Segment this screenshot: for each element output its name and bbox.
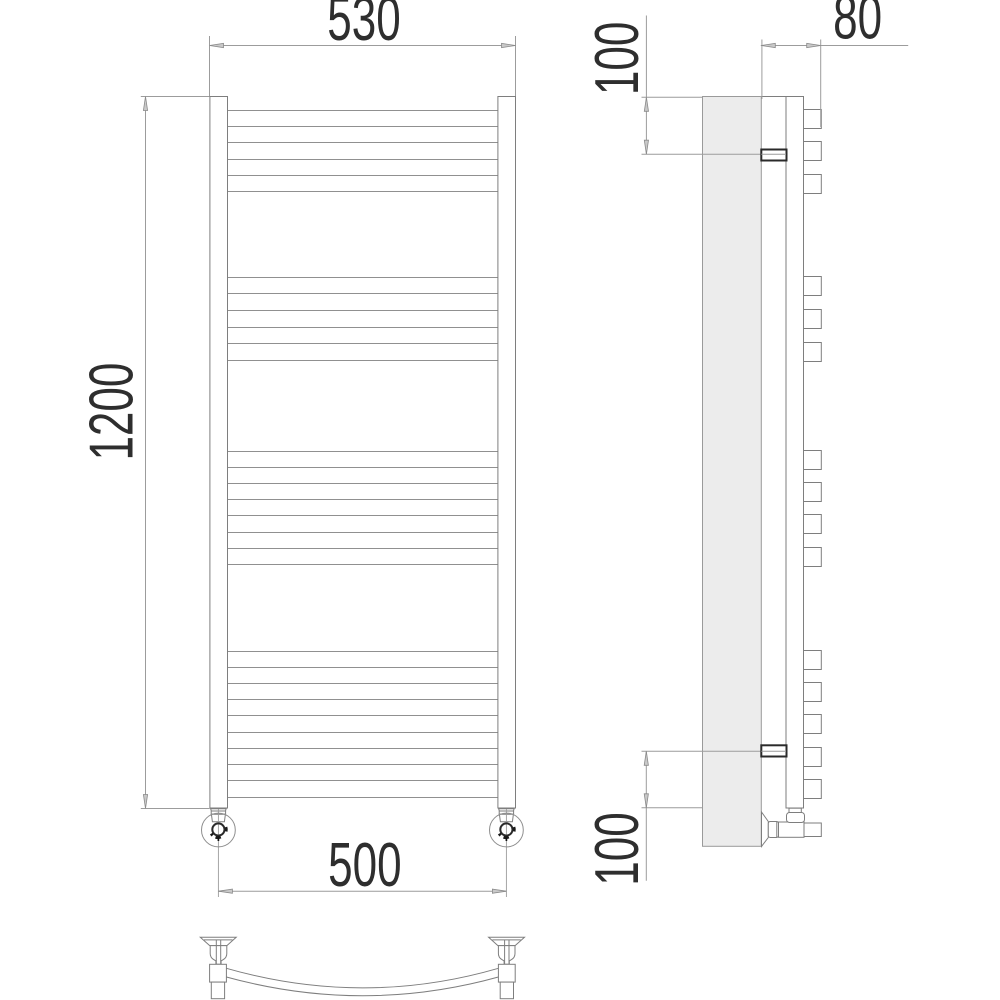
svg-text:100: 100 [583,22,652,95]
svg-text:530: 530 [327,0,400,54]
svg-text:1200: 1200 [77,363,146,461]
svg-text:500: 500 [328,831,401,900]
svg-text:100: 100 [583,812,652,885]
svg-text:80: 80 [833,0,882,52]
